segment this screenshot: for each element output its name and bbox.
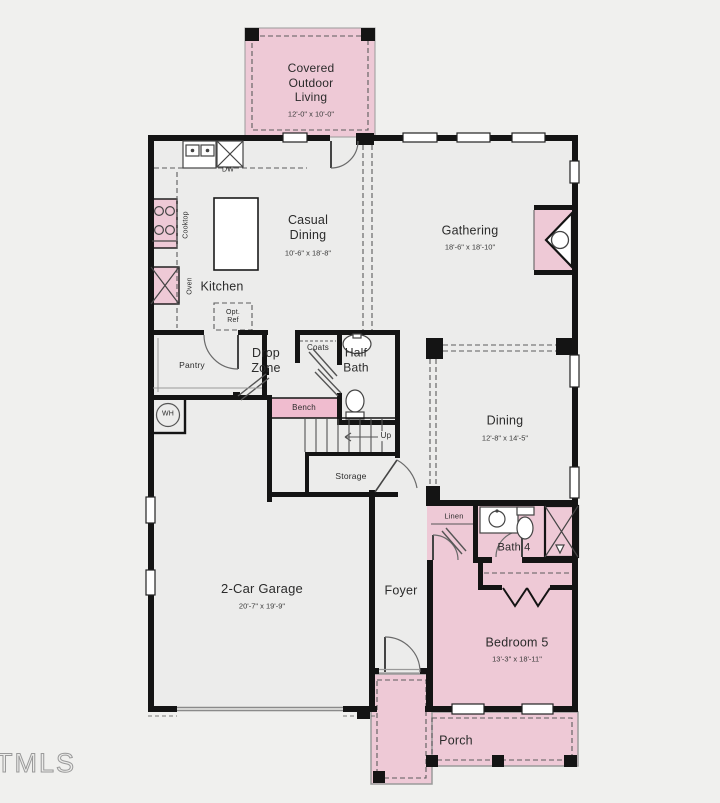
kitchen-island	[214, 198, 258, 270]
coats-label: Coats	[307, 343, 329, 353]
casual-dining-dims: 10'-6" x 18'-8"	[285, 248, 331, 257]
cooktop-label: Cooktop	[183, 211, 192, 238]
oven-label: Oven	[187, 277, 196, 295]
casual-dining-label: Casual Dining	[288, 213, 328, 244]
foyer-label: Foyer	[385, 583, 418, 598]
storage-label: Storage	[335, 471, 366, 481]
col-label: Covered Outdoor Living	[288, 61, 335, 105]
dining-label: Dining	[487, 413, 524, 428]
garage-dims: 20'-7" x 19'-9"	[239, 601, 285, 610]
up-label: Up	[380, 431, 393, 441]
kitchen-sink-icon	[183, 141, 216, 168]
drop-zone-label: Drop Zone	[251, 346, 280, 377]
half-bath-label: Half Bath	[343, 345, 369, 374]
opt-ref-label: Opt. Ref	[226, 309, 240, 325]
gathering-dims: 18'-6" x 18'-10"	[445, 242, 495, 251]
floor-plan-drawing	[0, 0, 720, 803]
floor-plan-page: Covered Outdoor Living 12'-0" x 10'-0" C…	[0, 0, 720, 803]
linen-label: Linen	[444, 511, 463, 520]
tmls-watermark: TMLS	[0, 748, 76, 779]
col-dims: 12'-0" x 10'-0"	[288, 109, 334, 118]
kitchen-label: Kitchen	[200, 279, 243, 294]
bath4-label: Bath 4	[497, 541, 530, 554]
bedroom5-label: Bedroom 5	[486, 635, 549, 650]
porch-label: Porch	[439, 733, 473, 748]
pantry-label: Pantry	[179, 360, 205, 370]
bench-label: Bench	[292, 403, 316, 413]
dishwasher-icon	[217, 141, 243, 167]
dining-dims: 12'-8" x 14'-5"	[482, 433, 528, 442]
wh-label: WH	[162, 411, 174, 420]
dw-label: DW	[222, 167, 234, 176]
gathering-label: Gathering	[442, 223, 499, 238]
bedroom5-dims: 13'-3" x 18'-11"	[492, 654, 542, 663]
garage-label: 2-Car Garage	[221, 581, 303, 597]
